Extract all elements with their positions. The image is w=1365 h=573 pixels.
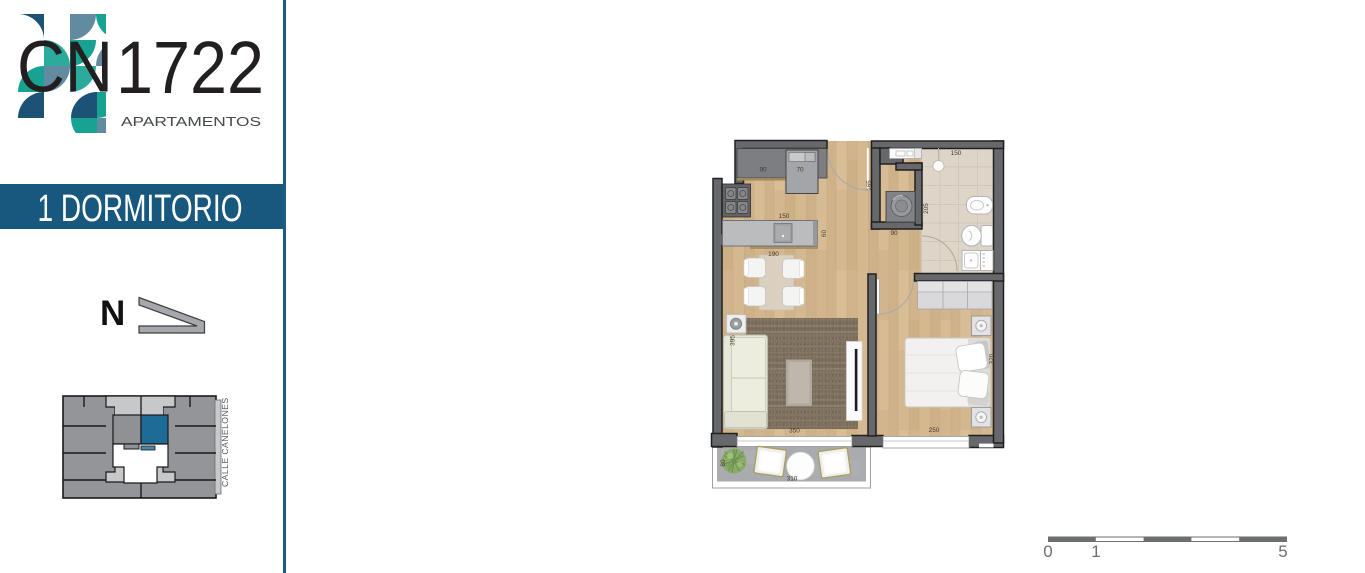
svg-text:1722: 1722: [116, 26, 264, 109]
svg-text:205: 205: [923, 203, 930, 214]
svg-text:80: 80: [720, 459, 727, 467]
svg-text:150: 150: [951, 150, 962, 157]
svg-text:APARTAMENTOS: APARTAMENTOS: [121, 114, 261, 129]
svg-text:1 DORMITORIO: 1 DORMITORIO: [38, 188, 243, 230]
svg-text:165: 165: [866, 180, 873, 191]
svg-text:90: 90: [759, 167, 767, 174]
svg-text:190: 190: [768, 251, 779, 258]
svg-text:5: 5: [1278, 542, 1287, 561]
svg-text:320: 320: [989, 353, 996, 364]
svg-text:0: 0: [1043, 542, 1052, 561]
svg-text:CN: CN: [17, 28, 113, 108]
svg-text:150: 150: [779, 213, 790, 220]
svg-text:250: 250: [929, 427, 940, 434]
svg-text:350: 350: [789, 428, 800, 435]
svg-text:310: 310: [787, 476, 798, 483]
svg-text:CALLE CANELONES: CALLE CANELONES: [220, 397, 230, 487]
svg-text:70: 70: [796, 167, 804, 174]
svg-text:1: 1: [1091, 542, 1100, 561]
svg-text:N: N: [100, 294, 125, 333]
svg-text:90: 90: [890, 230, 898, 237]
svg-text:60: 60: [821, 230, 828, 238]
svg-text:395: 395: [730, 335, 737, 346]
